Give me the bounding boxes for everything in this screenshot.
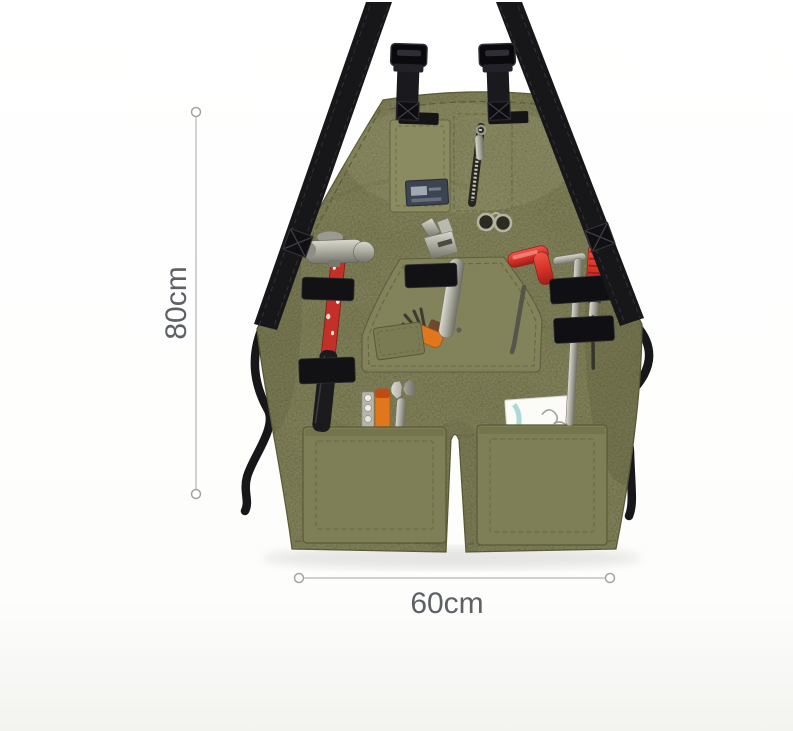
ground-shadow [262, 547, 642, 569]
right-buckle-stitch-box [488, 102, 511, 121]
hammer-loop-upper [302, 277, 355, 301]
left-bottom-pocket [303, 427, 446, 543]
hammer-loop-lower [299, 357, 356, 384]
right-tool-strap-lower [553, 315, 614, 343]
right-bottom-pocket [477, 425, 607, 545]
apron-scene: 80cm 60cm [0, 0, 793, 731]
width-endpoint-left [295, 574, 304, 583]
zipper-pull-tab [475, 135, 485, 160]
height-endpoint-top [192, 108, 201, 117]
left-buckle-stitch-box [397, 102, 420, 121]
product-photo: 80cm 60cm [0, 0, 793, 731]
height-dimension-label: 80cm [160, 266, 193, 339]
height-endpoint-bottom [192, 490, 201, 499]
wrench-loop [405, 263, 458, 288]
brand-label [405, 179, 448, 206]
width-dimension-label: 60cm [410, 587, 483, 620]
width-endpoint-right [606, 574, 615, 583]
small-flap-pocket [373, 322, 425, 360]
chest-pocket [390, 120, 450, 212]
bit-holder-tool [362, 389, 390, 430]
